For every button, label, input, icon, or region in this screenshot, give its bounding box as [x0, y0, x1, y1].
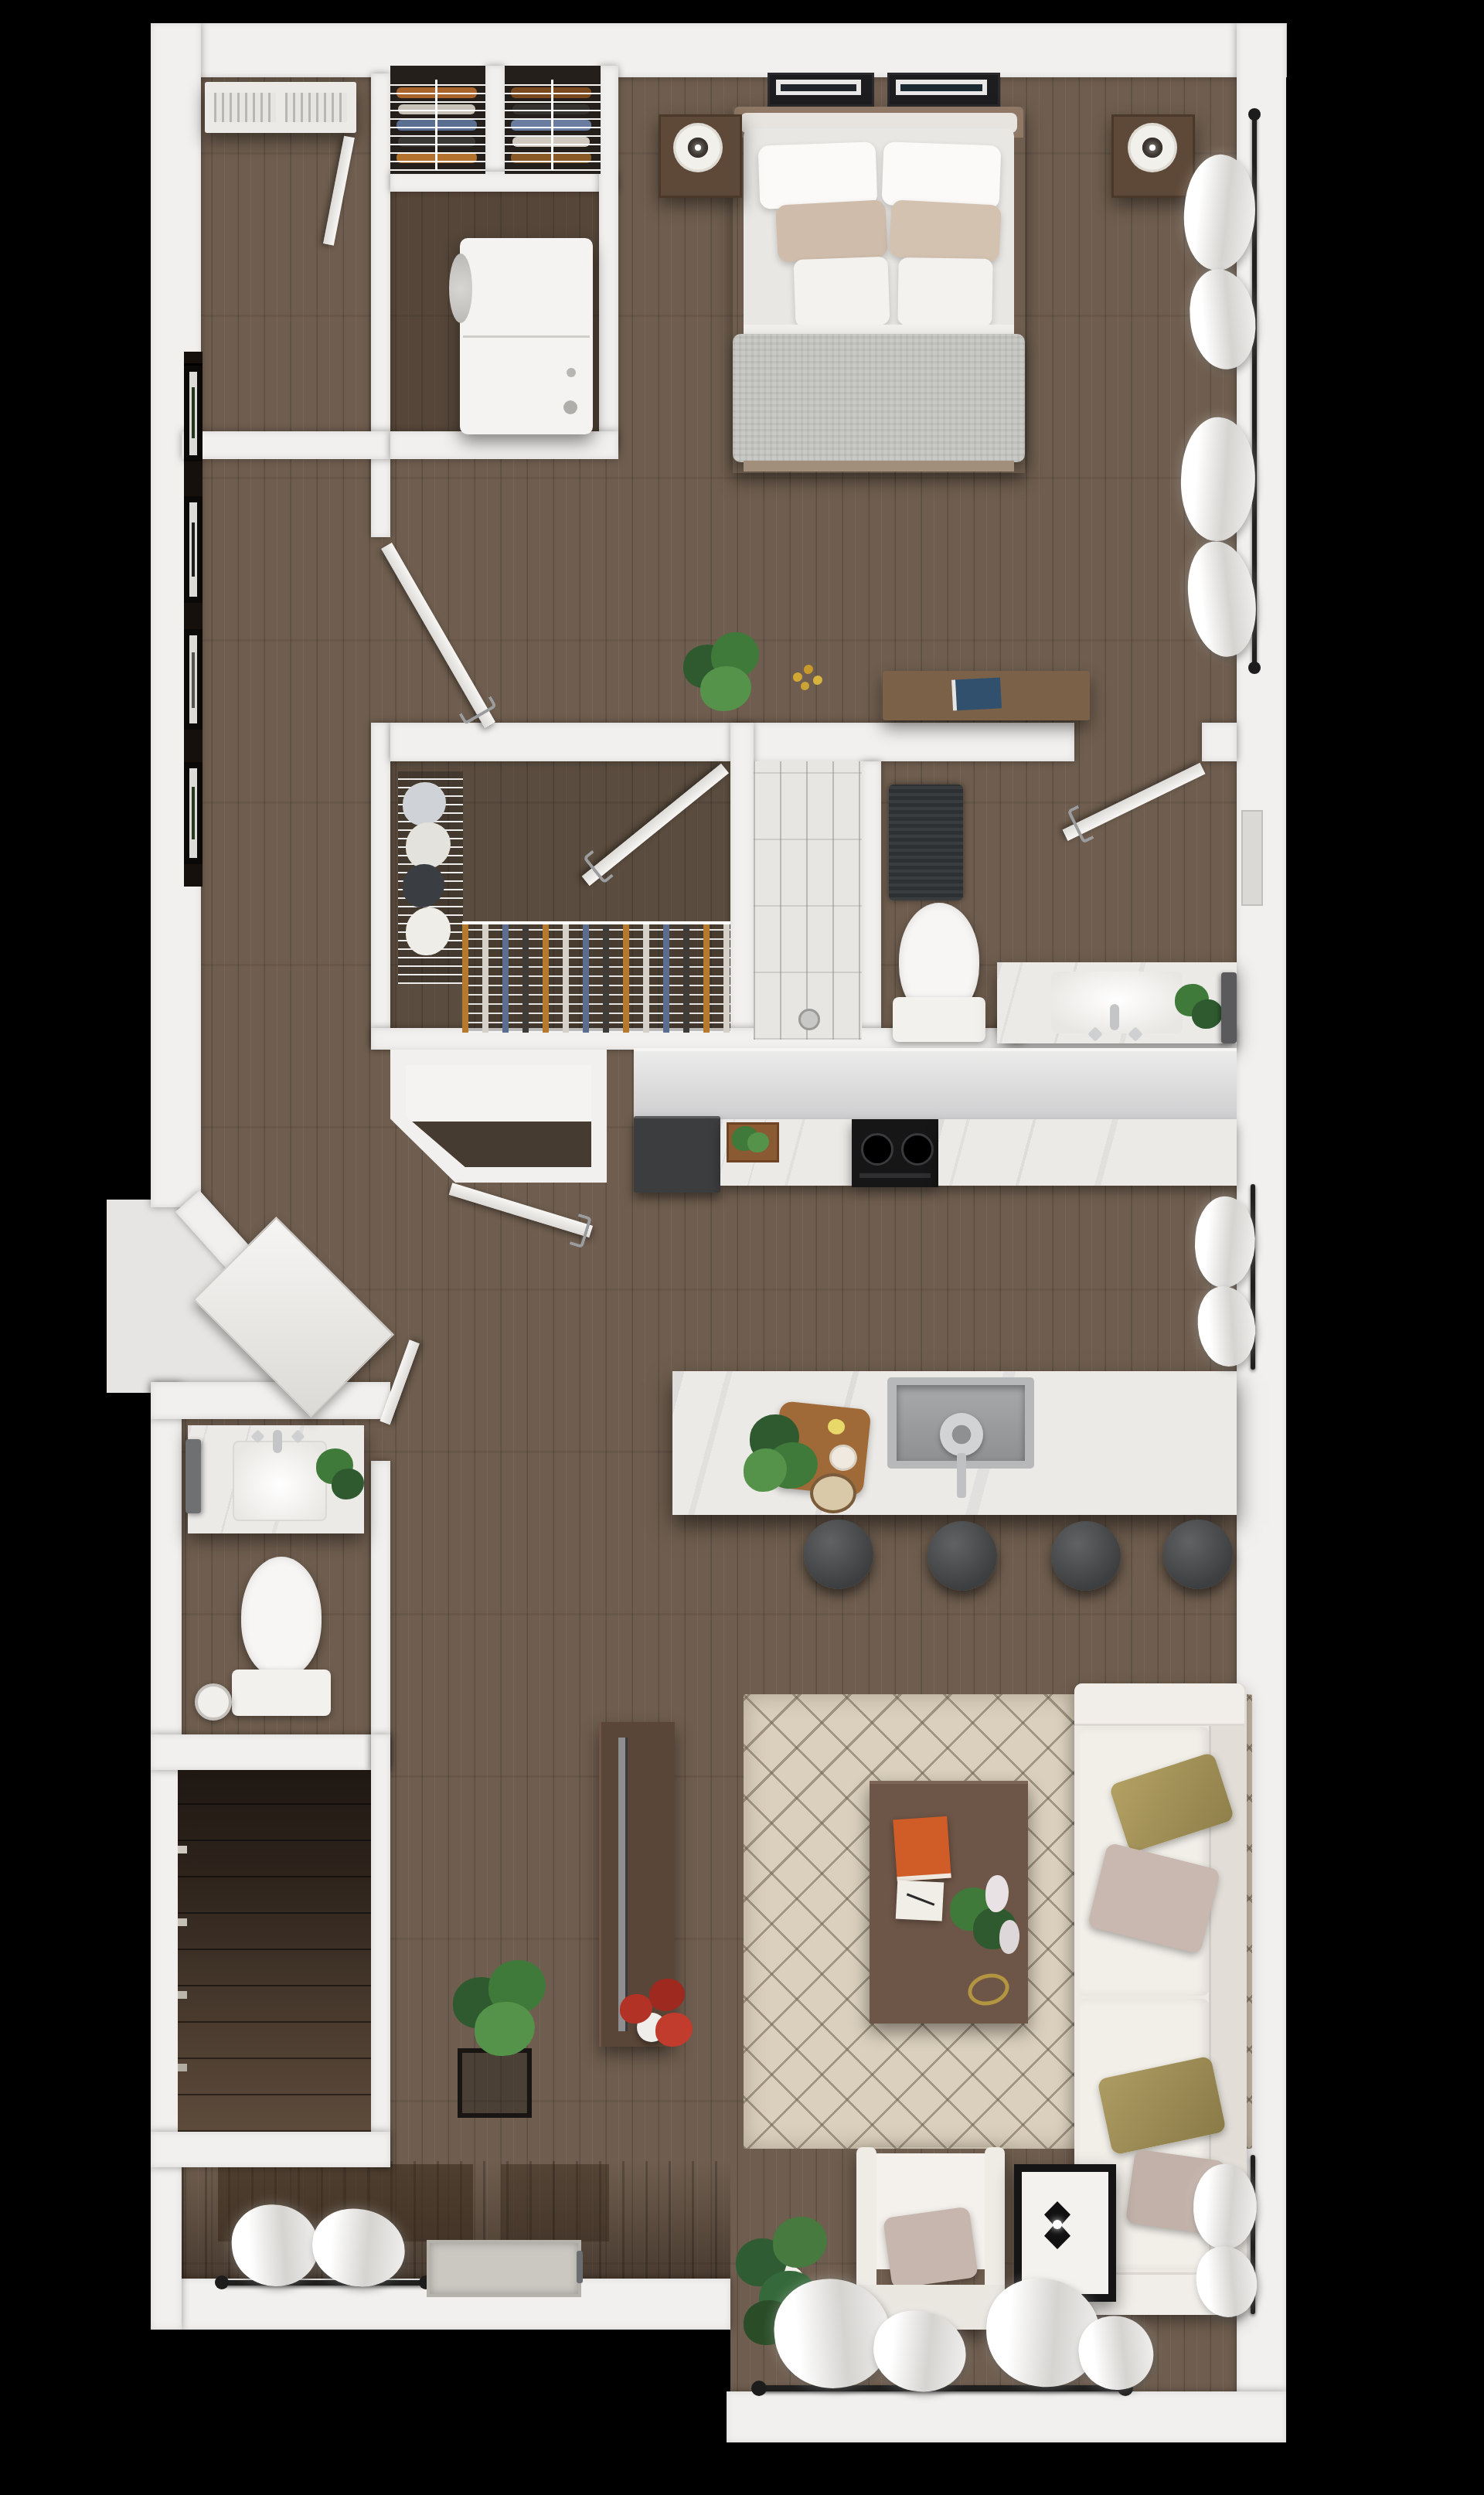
nightstand-left [659, 114, 742, 198]
small-bowl [828, 1443, 858, 1472]
halfbath-plant [332, 1469, 364, 1499]
dryer-knob [563, 400, 577, 414]
toilet-tank [232, 1670, 331, 1716]
burner [901, 1133, 934, 1166]
picture-frame [184, 363, 203, 461]
hvac-unit [205, 82, 356, 133]
sofa-armrest-top [1074, 1683, 1244, 1726]
frame-art [192, 522, 195, 577]
kitchen-island [672, 1371, 1237, 1515]
armchair-pillow [883, 2207, 979, 2289]
wire-shelf-rail [551, 80, 553, 171]
hvac-louver [214, 93, 276, 122]
lamp-bulb [1149, 145, 1156, 151]
entry-wood-panel [501, 2164, 609, 2241]
washer-drum [449, 254, 472, 323]
faucet-stem [957, 1453, 966, 1498]
frame-art [192, 787, 195, 839]
stair-edge [178, 2064, 187, 2071]
bath-mat [889, 785, 963, 900]
hvac-louver [285, 93, 347, 122]
lamp-bulb [1053, 2220, 1062, 2229]
gas-cooktop [852, 1119, 938, 1187]
wic-shelf-left [398, 771, 463, 984]
hanging-clothes [403, 782, 446, 825]
entry-door-mat [427, 2240, 581, 2297]
wall-shower-right [862, 761, 881, 1028]
wall-closet-divider [485, 66, 505, 182]
herb-leaves [747, 1132, 769, 1152]
wic-shelf-bottom [462, 921, 730, 1033]
halfbath-faucet [273, 1430, 282, 1453]
armchair-arm [985, 2147, 1005, 2294]
wall-closet-right [599, 66, 618, 448]
dryer-knob [567, 368, 576, 377]
bed-pillow-accent [775, 199, 888, 262]
coffee-table [870, 1781, 1028, 2024]
picture-frame [184, 629, 203, 730]
kitchen-upper-cabinets [634, 1048, 1237, 1122]
flower [793, 672, 802, 682]
burner [861, 1133, 893, 1166]
bedroom-plant [679, 629, 768, 722]
red-flowers [649, 1979, 685, 2011]
closet-wire-shelf [505, 66, 601, 174]
floor-plan [0, 0, 1484, 2495]
white-flowers [999, 1920, 1019, 1954]
wall-utility-bottom [182, 431, 390, 459]
artwork-frame [887, 73, 1000, 107]
media-bench [883, 671, 1090, 720]
gold-decor-ring [965, 1969, 1013, 2010]
plant-leaves [773, 2217, 827, 2268]
plant-leaves [700, 666, 751, 711]
notepad [896, 1880, 945, 1921]
table-lamp [1128, 123, 1177, 172]
toilet-bowl [241, 1557, 322, 1677]
wall-laundry-bottom [390, 431, 618, 459]
plant-leaves [475, 2002, 535, 2056]
washer-dryer-seam [463, 335, 590, 338]
closet-wire-shelf [390, 66, 485, 174]
vanity-faucet [1110, 1004, 1119, 1030]
shower-tile [754, 761, 862, 1040]
wall-left-lower [151, 1382, 182, 2330]
island-faucet [940, 1413, 983, 1456]
hanging-clothes [406, 907, 451, 955]
flower [804, 665, 813, 674]
book-blue [951, 677, 1002, 710]
picture-frame [184, 762, 203, 864]
stair-edge [178, 1846, 187, 1853]
rod-finial [1248, 662, 1261, 674]
bed-pillow-front [794, 257, 890, 328]
stair-edge [178, 1991, 187, 1999]
refrigerator [634, 1116, 720, 1193]
counter-stool [1163, 1520, 1233, 1589]
rod-finial [751, 2381, 767, 2396]
bathroom-vanity [997, 962, 1237, 1043]
lemon [827, 1418, 846, 1435]
wall-halfbath-top [151, 1382, 390, 1419]
wall-halfbath-right [371, 1461, 390, 1770]
toilet-tank [893, 997, 985, 1042]
picture-frame [184, 496, 203, 603]
wire-shelf-lines [390, 80, 485, 171]
counter-stool [927, 1521, 997, 1591]
wall-hall-closet-lower [371, 723, 390, 1047]
exterior-black-bottom-left [0, 2329, 730, 2495]
entry-door-handle [577, 2251, 583, 2283]
flower [801, 682, 809, 690]
wall-bedroom-bottom-right [1202, 723, 1237, 761]
halfbath-sink [233, 1441, 327, 1521]
wall-closet-bottom [390, 172, 618, 192]
counter-right [938, 1119, 1237, 1186]
counter-left [720, 1119, 852, 1186]
table-lamp [673, 123, 723, 172]
wall-top [151, 23, 1287, 77]
yellow-flowers [791, 662, 827, 694]
halfbath-towel [185, 1439, 201, 1513]
shower-drain [798, 1009, 820, 1030]
toilet-paper-roll [195, 1683, 232, 1721]
white-flowers [985, 1875, 1009, 1912]
bed-throw-blanket [733, 334, 1025, 462]
frame-art [192, 387, 195, 438]
counter-stool [1051, 1521, 1121, 1591]
wall-stair-bottom [151, 2132, 390, 2167]
hanging-clothes [406, 822, 451, 869]
bed [733, 107, 1025, 473]
curtain-rod-entry [223, 2280, 425, 2286]
flower [813, 676, 822, 685]
toilet [893, 903, 985, 1050]
wall-stair-right [371, 1734, 390, 2167]
frame-art [192, 652, 195, 708]
artwork-image [781, 84, 856, 91]
seed-bowl [810, 1473, 856, 1513]
artwork-image [900, 84, 982, 91]
coat-closet-interior [406, 1065, 591, 1167]
cooktop-vent [859, 1173, 931, 1178]
halfbath-toilet [232, 1557, 331, 1719]
bed-pillow-accent [889, 199, 1002, 262]
herb-crate [727, 1122, 779, 1162]
stand-plant [447, 1954, 556, 2070]
bed-pillow-front [897, 257, 993, 327]
nightstand-right [1111, 114, 1195, 198]
lamp-bulb [695, 145, 701, 151]
book-orange [893, 1816, 951, 1882]
bed-footboard [744, 461, 1014, 471]
rod-finial [215, 2275, 229, 2289]
bed-pillow-white [882, 141, 1002, 209]
vanity-plant [1192, 999, 1223, 1029]
counter-stool [804, 1520, 873, 1589]
red-flower-plant [615, 1973, 700, 2064]
washer-dryer [460, 238, 593, 434]
artwork-frame [768, 73, 874, 107]
bath-towel [1221, 972, 1237, 1043]
stairwell [178, 1770, 371, 2132]
bath-wall-mirror [1241, 810, 1263, 906]
red-flowers [655, 2013, 693, 2047]
pen [907, 1893, 935, 1905]
bed-pillow-white [758, 141, 878, 209]
wall-halfbath-stair [151, 1734, 390, 1770]
stair-edge [178, 1918, 187, 1926]
rod-finial [1248, 108, 1261, 121]
wall-bottom-right [727, 2391, 1286, 2442]
wall-wic-right [730, 723, 754, 1040]
armchair-arm [856, 2147, 876, 2294]
halfbath-vanity [188, 1425, 364, 1533]
wire-shelf-rail [435, 80, 437, 171]
hanging-clothes [403, 864, 444, 907]
wall-hall-closets [371, 73, 390, 537]
